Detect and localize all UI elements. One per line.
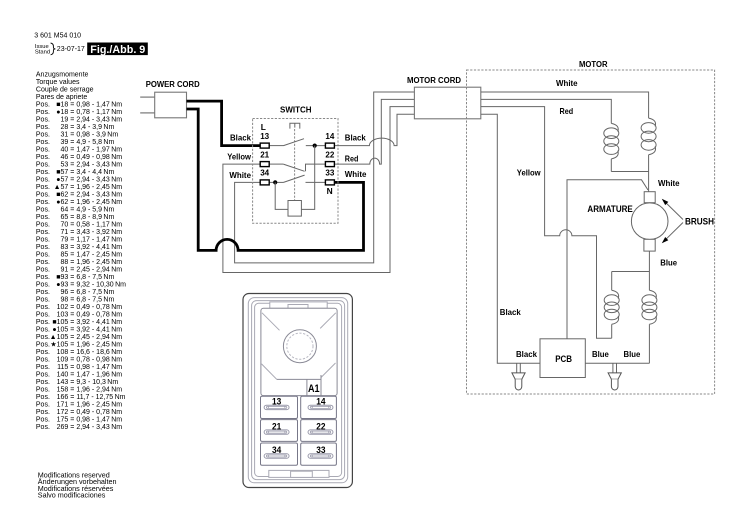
svg-text:White: White [229,170,251,180]
svg-text:= 9,32 - 10,30 Nm: = 9,32 - 10,30 Nm [70,282,126,289]
svg-text:Torque values: Torque values [36,79,80,86]
svg-text:88: 88 [61,259,69,266]
svg-text:Pos.: Pos. [36,304,50,311]
svg-text:Pos.: Pos. [36,282,50,289]
svg-text:3 601 M54 010: 3 601 M54 010 [34,33,81,40]
svg-text:22: 22 [325,149,334,159]
svg-text:= 3,92 - 4,41 Nm: = 3,92 - 4,41 Nm [70,244,122,251]
svg-text:109: 109 [57,357,69,364]
svg-text:= 11,7 - 12,75 Nm: = 11,7 - 12,75 Nm [70,394,125,401]
svg-text:19: 19 [61,117,69,124]
svg-text:= 0,98 - 1,47 Nm: = 0,98 - 1,47 Nm [70,102,122,109]
svg-text:Yellow: Yellow [517,167,541,177]
svg-text:Pos.: Pos. [36,409,50,416]
svg-text:64: 64 [61,207,69,214]
svg-text:= 1,47 - 1,97 Nm: = 1,47 - 1,97 Nm [70,147,122,154]
svg-text:= 3,92 - 4,41 Nm: = 3,92 - 4,41 Nm [70,319,122,326]
svg-text:Pares de apriete: Pares de apriete [36,94,87,101]
svg-text:31: 31 [61,132,69,139]
svg-text:= 9,3 - 10,3 Nm: = 9,3 - 10,3 Nm [70,379,118,386]
svg-text:Black: Black [230,132,251,142]
svg-text:Pos.: Pos. [36,147,50,154]
svg-text:85: 85 [61,252,69,259]
svg-text:= 1,47 - 1,96 Nm: = 1,47 - 1,96 Nm [70,372,122,379]
svg-text:Pos.: Pos. [36,169,50,176]
svg-text:71: 71 [61,229,69,236]
svg-text:= 1,47 - 2,45 Nm: = 1,47 - 2,45 Nm [70,252,122,259]
svg-text:Pos.: Pos. [36,117,50,124]
svg-text:Black: Black [500,307,521,317]
svg-text:= 16,6 - 18,6 Nm: = 16,6 - 18,6 Nm [70,349,122,356]
svg-text:●93: ●93 [56,282,68,289]
svg-text:Fig./Abb. 9: Fig./Abb. 9 [90,44,145,56]
svg-text:Pos.: Pos. [36,259,50,266]
svg-text:Blue: Blue [592,349,609,359]
svg-text:= 0,78 - 0,98 Nm: = 0,78 - 0,98 Nm [70,357,122,364]
svg-text:■93: ■93 [56,274,68,281]
svg-text:= 2,94 - 3,43 Nm: = 2,94 - 3,43 Nm [70,424,122,431]
svg-text:70: 70 [61,222,69,229]
svg-text:= 8,8 - 8,9 Nm: = 8,8 - 8,9 Nm [70,214,114,221]
svg-text:Pos.: Pos. [36,364,50,371]
svg-text:269: 269 [57,424,69,431]
svg-text:Pos.: Pos. [36,289,50,296]
svg-text:172: 172 [57,409,69,416]
svg-text:65: 65 [61,214,69,221]
svg-text:Pos.: Pos. [36,214,50,221]
svg-text:= 3,4 - 4,4 Nm: = 3,4 - 4,4 Nm [70,169,114,176]
svg-text:★105: ★105 [50,341,68,349]
svg-text:Pos.: Pos. [36,192,50,199]
svg-text:Pos.: Pos. [36,132,50,139]
svg-text:MOTOR CORD: MOTOR CORD [407,75,461,85]
svg-text:= 6,8 - 7,5 Nm: = 6,8 - 7,5 Nm [70,297,114,304]
svg-text:Pos.: Pos. [36,222,50,229]
svg-text:Pos.: Pos. [36,162,50,169]
svg-text:Pos.: Pos. [36,342,50,349]
svg-text:Pos.: Pos. [36,199,50,206]
svg-text:Pos.: Pos. [36,402,50,409]
svg-text:= 1,96 - 2,45 Nm: = 1,96 - 2,45 Nm [70,342,122,349]
svg-text:Yellow: Yellow [227,152,251,162]
svg-text:= 0,98 - 1,47 Nm: = 0,98 - 1,47 Nm [70,417,122,424]
svg-text:= 1,17 - 1,47 Nm: = 1,17 - 1,47 Nm [70,237,122,244]
svg-text:166: 166 [57,394,69,401]
svg-text:N: N [327,186,333,196]
svg-text:= 0,58 - 1,17 Nm: = 0,58 - 1,17 Nm [70,222,122,229]
svg-text:Stand: Stand [35,50,50,56]
svg-text:= 0,49 - 0,78 Nm: = 0,49 - 0,78 Nm [70,304,122,311]
svg-text:= 0,98 - 3,9 Nm: = 0,98 - 3,9 Nm [70,132,118,139]
svg-text:158: 158 [57,387,69,394]
svg-text:■18: ■18 [56,102,68,109]
svg-text:●62: ●62 [56,199,68,206]
svg-text:= 1,96 - 2,45 Nm: = 1,96 - 2,45 Nm [70,199,122,206]
svg-text:= 0,49 - 0,78 Nm: = 0,49 - 0,78 Nm [70,312,122,319]
svg-text:96: 96 [61,289,69,296]
svg-text:Pos.: Pos. [36,327,50,334]
svg-text:A1: A1 [308,383,320,395]
svg-text:= 0,49 - 0,78 Nm: = 0,49 - 0,78 Nm [70,409,122,416]
svg-text:= 2,45 - 2,94 Nm: = 2,45 - 2,94 Nm [70,334,122,341]
svg-text:39: 39 [61,139,69,146]
svg-text:= 0,78 - 1,17 Nm: = 0,78 - 1,17 Nm [70,109,122,116]
svg-text:83: 83 [61,244,69,251]
svg-text:■57: ■57 [56,169,68,176]
svg-text:●57: ●57 [56,177,68,184]
svg-text:POWER CORD: POWER CORD [146,79,200,89]
svg-text:Pos.: Pos. [36,177,50,184]
svg-text:Pos.: Pos. [36,109,50,116]
svg-text:= 4,9 - 5,9 Nm: = 4,9 - 5,9 Nm [70,207,114,214]
svg-text:Pos.: Pos. [36,372,50,379]
svg-text:Pos.: Pos. [36,274,50,281]
svg-text:Pos.: Pos. [36,349,50,356]
svg-text:Pos.: Pos. [36,394,50,401]
svg-text:Pos.: Pos. [36,267,50,274]
svg-text:Blue: Blue [624,349,641,359]
svg-text:Pos.: Pos. [36,252,50,259]
svg-text:Pos.: Pos. [36,184,50,191]
svg-text:= 0,98 - 1,47 Nm: = 0,98 - 1,47 Nm [70,364,122,371]
svg-text:= 6,8 - 7,5 Nm: = 6,8 - 7,5 Nm [70,274,114,281]
svg-text:Pos.: Pos. [36,319,50,326]
svg-text:= 2,94 - 3,43 Nm: = 2,94 - 3,43 Nm [70,162,122,169]
svg-text:= 0,49 - 0,98 Nm: = 0,49 - 0,98 Nm [70,154,122,161]
svg-text:= 3,4 - 3,9 Nm: = 3,4 - 3,9 Nm [70,124,114,131]
svg-text:●18: ●18 [56,109,68,116]
svg-text:53: 53 [61,162,69,169]
svg-text:= 1,96 - 2,45 Nm: = 1,96 - 2,45 Nm [70,259,122,266]
svg-text:115: 115 [57,364,68,371]
svg-text:175: 175 [57,417,69,424]
svg-text:Blue: Blue [660,257,677,267]
svg-text:Pos.: Pos. [36,379,50,386]
svg-text:Pos.: Pos. [36,312,50,319]
svg-text:79: 79 [61,237,69,244]
svg-text:Black: Black [516,349,537,359]
svg-text:▲105: ▲105 [50,334,69,341]
svg-text:Pos.: Pos. [36,154,50,161]
svg-text:BRUSH: BRUSH [685,216,714,226]
svg-text:= 2,94 - 3,43 Nm: = 2,94 - 3,43 Nm [70,177,122,184]
svg-text:Pos.: Pos. [36,424,50,431]
svg-text:= 6,8 - 7,5 Nm: = 6,8 - 7,5 Nm [70,289,114,296]
svg-text:Red: Red [560,106,574,116]
svg-text:= 4,9 - 5,8 Nm: = 4,9 - 5,8 Nm [70,139,114,146]
svg-text:34: 34 [260,168,269,178]
svg-text:= 2,45 - 2,94 Nm: = 2,45 - 2,94 Nm [70,267,122,274]
svg-text:Pos.: Pos. [36,124,50,131]
svg-text:Salvo modificaciones: Salvo modificaciones [38,491,106,500]
svg-text:Red: Red [345,154,359,164]
svg-text:PCB: PCB [555,354,572,364]
svg-text:▲57: ▲57 [54,184,69,191]
svg-text:171: 171 [57,402,69,409]
svg-text:ARMATURE: ARMATURE [587,204,633,214]
svg-text:Pos.: Pos. [36,417,50,424]
svg-text:33: 33 [325,168,334,178]
svg-text:14: 14 [325,131,334,141]
svg-text:Pos.: Pos. [36,244,50,251]
svg-text:Pos.: Pos. [36,207,50,214]
svg-text:Pos.: Pos. [36,297,50,304]
svg-text:= 2,94 - 3,43 Nm: = 2,94 - 3,43 Nm [70,117,122,124]
svg-text:40: 40 [61,147,69,154]
svg-text:23-07-17: 23-07-17 [57,46,85,53]
svg-text:SWITCH: SWITCH [280,105,312,115]
svg-text:Pos.: Pos. [36,237,50,244]
svg-text:= 3,43 - 3,92 Nm: = 3,43 - 3,92 Nm [70,229,122,236]
svg-text:Pos.: Pos. [36,229,50,236]
svg-text:Anzugsmomente: Anzugsmomente [36,72,89,79]
svg-text:98: 98 [61,297,69,304]
svg-text:White: White [345,169,367,179]
svg-text:28: 28 [61,124,69,131]
svg-text:103: 103 [57,312,69,319]
svg-text:= 3,92 - 4,41 Nm: = 3,92 - 4,41 Nm [70,327,122,334]
svg-text:■62: ■62 [56,192,68,199]
svg-text:13: 13 [260,131,269,141]
svg-text:91: 91 [61,267,69,274]
svg-text:102: 102 [57,304,69,311]
svg-text:Pos.: Pos. [36,139,50,146]
svg-text:= 1,96 - 2,94 Nm: = 1,96 - 2,94 Nm [70,387,122,394]
svg-text:Couple de serrage: Couple de serrage [36,87,94,94]
svg-text:= 1,96 - 2,45 Nm: = 1,96 - 2,45 Nm [70,184,122,191]
svg-text:46: 46 [61,154,69,161]
svg-text:108: 108 [57,349,69,356]
svg-text:21: 21 [260,149,269,159]
svg-text:White: White [658,178,680,188]
svg-text:140: 140 [57,372,69,379]
svg-text:White: White [556,78,578,88]
svg-text:Black: Black [345,132,366,142]
svg-text:= 1,96 - 2,45 Nm: = 1,96 - 2,45 Nm [70,402,122,409]
svg-text:■105: ■105 [52,319,68,326]
svg-text:Pos.: Pos. [36,357,50,364]
svg-text:Pos.: Pos. [36,387,50,394]
svg-text:= 2,94 - 3,43 Nm: = 2,94 - 3,43 Nm [70,192,122,199]
svg-text:MOTOR: MOTOR [579,59,608,69]
svg-text:143: 143 [57,379,69,386]
svg-text:●105: ●105 [52,327,68,334]
svg-text:Pos.: Pos. [36,102,50,109]
svg-text:Pos.: Pos. [36,334,50,341]
